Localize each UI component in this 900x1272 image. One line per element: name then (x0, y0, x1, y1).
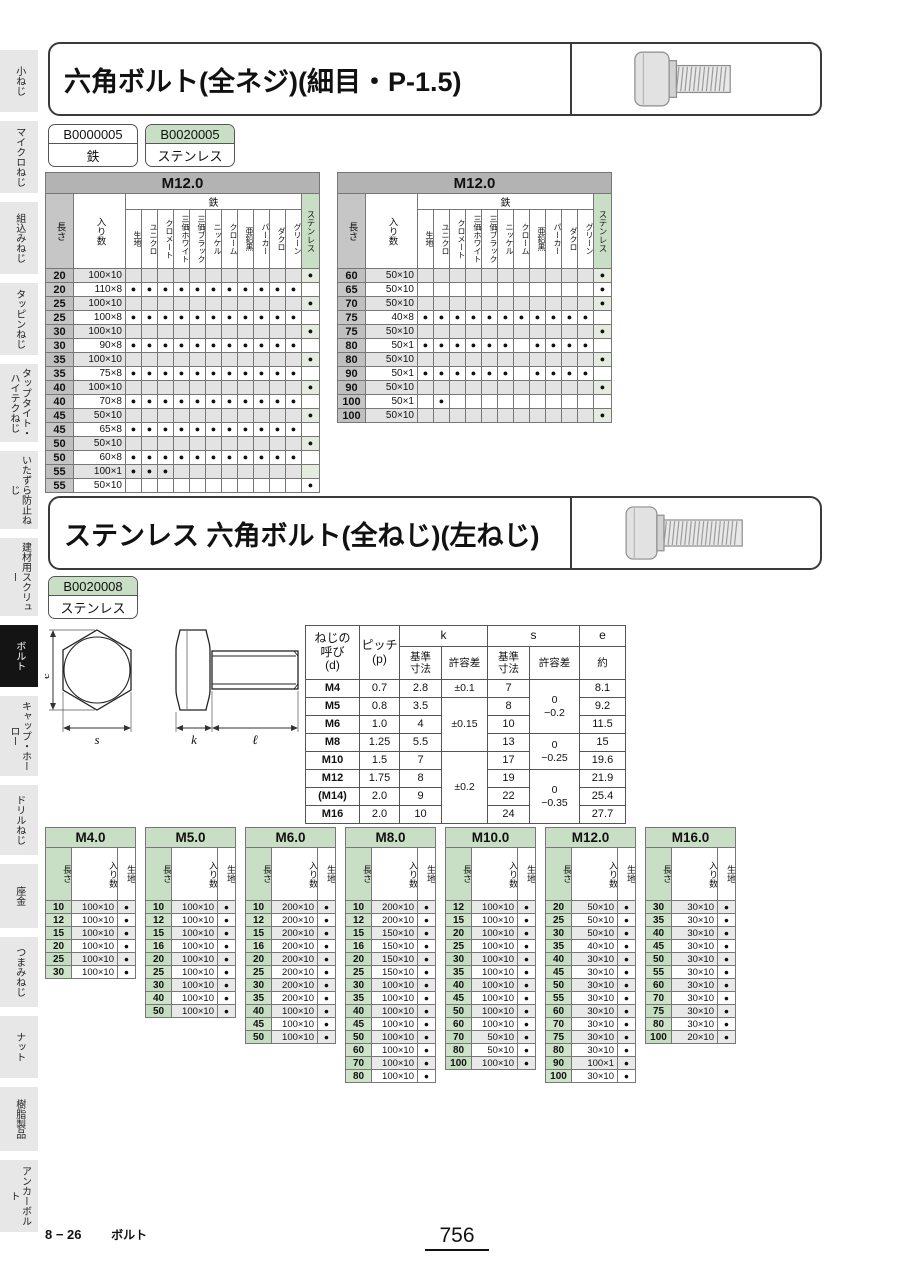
availability-cell: ● (618, 1070, 636, 1083)
k-tolerance-cell: ±0.2 (442, 752, 488, 824)
length-cell: 20 (146, 953, 172, 966)
finish-availability-cell (418, 269, 434, 283)
section2-header: ステンレス 六角ボルト(全ねじ)(左ねじ) (48, 496, 822, 570)
finish-availability-cell: ● (466, 311, 482, 325)
finish-availability-cell (530, 409, 546, 423)
sidebar-item-0: 小ねじ (0, 50, 38, 112)
qty-cell: 100×10 (472, 979, 518, 992)
finish-availability-cell: ● (206, 283, 222, 297)
qty-cell: 30×10 (672, 901, 718, 914)
finish-availability-cell: ● (546, 339, 562, 353)
availability-cell: ● (418, 1018, 436, 1031)
availability-cell: ● (218, 992, 236, 1005)
table-row: 12100×10● (146, 914, 236, 927)
table-row: 9050×1●●●●●●●●●● (338, 367, 612, 381)
table-row: 25200×10● (246, 966, 336, 979)
finish-col-header: 亜鉛黒 (530, 210, 546, 269)
finish-availability-cell (222, 437, 238, 451)
length-cell: 100 (546, 1070, 572, 1083)
pitch-cell: 0.7 (360, 680, 400, 698)
stainless-availability-cell: ● (594, 325, 612, 339)
table-row: 30100×10● (46, 966, 136, 979)
table-row: 30100×10● (46, 325, 320, 339)
availability-cell: ● (618, 979, 636, 992)
finish-availability-cell (286, 297, 302, 311)
finish-availability-cell: ● (286, 451, 302, 465)
table-row: 60100×10● (346, 1044, 436, 1057)
size-table-M12.0: M12.0長さ入り数生地2050×10●2550×10●3050×10●3540… (545, 827, 636, 1083)
finish-availability-cell: ● (498, 367, 514, 381)
finish-availability-cell (514, 269, 530, 283)
length-cell: 35 (546, 940, 572, 953)
finish-availability-cell (190, 465, 206, 479)
availability-cell: ● (118, 940, 136, 953)
qty-cell: 100×10 (172, 901, 218, 914)
sidebar-item-8: キャップ・ホーロー (0, 696, 38, 776)
dim-header-base: 基準 寸法 (400, 647, 442, 680)
length-cell: 10 (46, 901, 72, 914)
size-table-title: M6.0 (246, 828, 336, 848)
stainless-availability-cell: ● (594, 297, 612, 311)
finish-col-header: ユニクロ (142, 210, 158, 269)
table-row: 15150×10● (346, 927, 436, 940)
k-tolerance-cell: ±0.1 (442, 680, 488, 698)
qty-cell: 50×1 (366, 367, 418, 381)
table-row: 20100×10● (446, 927, 536, 940)
finish-col-header: クローム (514, 210, 530, 269)
finish-availability-cell: ● (286, 423, 302, 437)
table-row: 12100×10● (46, 914, 136, 927)
qty-cell: 50×10 (366, 283, 418, 297)
finish-availability-cell (270, 269, 286, 283)
availability-cell: ● (518, 914, 536, 927)
qty-cell: 30×10 (572, 1070, 618, 1083)
table-row: 40100×10● (446, 979, 536, 992)
qty-cell: 100×10 (472, 901, 518, 914)
dim-label-e: e (45, 673, 52, 679)
availability-cell: ● (618, 901, 636, 914)
finish-availability-cell (482, 297, 498, 311)
qty-cell: 100×10 (72, 927, 118, 940)
section2-bolt-photo (572, 498, 820, 568)
availability-cell: ● (218, 1005, 236, 1018)
finish-availability-cell (254, 479, 270, 493)
finish-availability-cell (466, 381, 482, 395)
length-cell: 40 (346, 1005, 372, 1018)
finish-availability-cell (142, 381, 158, 395)
finish-availability-cell: ● (126, 283, 142, 297)
qty-cell: 30×10 (572, 966, 618, 979)
finish-availability-cell: ● (142, 283, 158, 297)
finish-availability-cell (514, 395, 530, 409)
qty-cell: 100×10 (172, 953, 218, 966)
qty-cell: 50×10 (572, 927, 618, 940)
length-cell: 45 (546, 966, 572, 979)
finish-availability-cell (482, 409, 498, 423)
table-row: 45100×10● (446, 992, 536, 1005)
finish-availability-cell (270, 325, 286, 339)
finish-availability-cell: ● (222, 451, 238, 465)
table-row: 3530×10● (646, 914, 736, 927)
length-cell: 50 (346, 1031, 372, 1044)
dim-header-tol: 許容差 (442, 647, 488, 680)
stainless-availability-cell: ● (302, 325, 320, 339)
finish-availability-cell: ● (562, 311, 578, 325)
table-row: 4530×10● (646, 940, 736, 953)
availability-cell: ● (318, 1005, 336, 1018)
sidebar-item-10: 座金 (0, 864, 38, 928)
qty-cell: 100×10 (72, 901, 118, 914)
qty-cell: 100×10 (472, 992, 518, 1005)
material-label: 鉄 (49, 144, 137, 166)
finish-availability-cell: ● (450, 339, 466, 353)
finish-availability-cell (450, 283, 466, 297)
availability-cell: ● (218, 966, 236, 979)
finish-availability-cell: ● (286, 339, 302, 353)
product-code: B0000005 (49, 125, 137, 144)
finish-availability-cell: ● (190, 395, 206, 409)
finish-availability-cell: ● (418, 367, 434, 381)
length-cell: 50 (646, 953, 672, 966)
finish-availability-cell (546, 269, 562, 283)
length-cell: 12 (346, 914, 372, 927)
finish-availability-cell: ● (158, 423, 174, 437)
length-cell: 25 (46, 297, 74, 311)
finish-availability-cell: ● (482, 311, 498, 325)
finish-availability-cell (578, 325, 594, 339)
finish-availability-cell (206, 479, 222, 493)
table-row: 16150×10● (346, 940, 436, 953)
finish-availability-cell (254, 297, 270, 311)
finish-availability-cell (418, 325, 434, 339)
qty-cell: 50×10 (366, 297, 418, 311)
finish-availability-cell (190, 269, 206, 283)
finish-availability-cell (142, 325, 158, 339)
availability-cell: ● (418, 979, 436, 992)
length-cell: 80 (446, 1044, 472, 1057)
finish-availability-cell (434, 269, 450, 283)
finish-availability-cell: ● (254, 339, 270, 353)
qty-cell: 200×10 (272, 966, 318, 979)
availability-cell: ● (518, 901, 536, 914)
availability-cell: ● (418, 1044, 436, 1057)
qty-cell: 100×10 (472, 1018, 518, 1031)
length-cell: 30 (246, 979, 272, 992)
availability-cell: ● (118, 953, 136, 966)
finish-availability-cell: ● (222, 395, 238, 409)
availability-cell: ● (518, 1018, 536, 1031)
length-cell: 40 (246, 1005, 272, 1018)
finish-availability-cell: ● (530, 311, 546, 325)
length-cell: 80 (646, 1018, 672, 1031)
finish-availability-cell: ● (270, 395, 286, 409)
qty-cell: 40×10 (572, 940, 618, 953)
finish-availability-cell (466, 325, 482, 339)
stainless-availability-cell: ● (594, 269, 612, 283)
finish-availability-cell (530, 297, 546, 311)
finish-availability-cell (206, 269, 222, 283)
table-row: 2050×10● (546, 901, 636, 914)
table-row: 5050×10● (46, 437, 320, 451)
table-row: 8030×10● (546, 1044, 636, 1057)
table-row: 10020×10● (646, 1031, 736, 1044)
finish-availability-cell (546, 395, 562, 409)
plain-finish-col-header: 生地 (218, 848, 236, 901)
length-cell: 35 (46, 353, 74, 367)
finish-availability-cell (546, 353, 562, 367)
table-row: 25150×10● (346, 966, 436, 979)
finish-availability-cell: ● (434, 311, 450, 325)
availability-cell: ● (218, 927, 236, 940)
k-base-cell: 5.5 (400, 734, 442, 752)
finish-col-header: ダクロ (270, 210, 286, 269)
finish-availability-cell: ● (158, 395, 174, 409)
availability-cell: ● (318, 927, 336, 940)
length-cell: 35 (46, 367, 74, 381)
sidebar: 小ねじマイクロねじ組込みねじタッピンねじタップタイト・ハイテクねじいたずら防止ね… (0, 50, 38, 1232)
qty-cell: 150×10 (372, 953, 418, 966)
qty-cell: 30×10 (672, 1005, 718, 1018)
length-col-header: 長さ (646, 848, 672, 901)
qty-cell: 100×8 (74, 311, 126, 325)
finish-availability-cell (206, 437, 222, 451)
finish-availability-cell (418, 381, 434, 395)
finish-availability-cell: ● (158, 339, 174, 353)
finish-col-header: パーカー (546, 210, 562, 269)
finish-availability-cell (238, 437, 254, 451)
thread-size-cell: M10 (306, 752, 360, 770)
finish-availability-cell: ● (206, 423, 222, 437)
finish-availability-cell (286, 353, 302, 367)
length-cell: 30 (346, 979, 372, 992)
finish-availability-cell (222, 353, 238, 367)
qty-cell: 150×10 (372, 940, 418, 953)
qty-cell: 100×10 (472, 927, 518, 940)
finish-availability-cell: ● (206, 451, 222, 465)
length-cell: 30 (46, 966, 72, 979)
table-row: 6050×10● (338, 269, 612, 283)
finish-availability-cell (578, 353, 594, 367)
length-cell: 10 (246, 901, 272, 914)
availability-cell: ● (618, 966, 636, 979)
s-base-cell: 10 (488, 716, 530, 734)
table-row: 10030×10● (546, 1070, 636, 1083)
table-row: 15100×10● (446, 914, 536, 927)
availability-cell: ● (418, 1057, 436, 1070)
availability-cell: ● (518, 927, 536, 940)
finish-availability-cell (450, 297, 466, 311)
table-row: 45100×10● (346, 1018, 436, 1031)
s-tolerance-cell: 0 −0.25 (530, 734, 580, 770)
finish-availability-cell (450, 381, 466, 395)
finish-availability-cell (174, 381, 190, 395)
table-row: 3050×10● (546, 927, 636, 940)
finish-availability-cell (466, 297, 482, 311)
length-cell: 25 (246, 966, 272, 979)
finish-availability-cell (206, 297, 222, 311)
qty-cell: 100×1 (74, 465, 126, 479)
finish-availability-cell: ● (206, 367, 222, 381)
table-row: 40100×10● (46, 381, 320, 395)
stainless-availability-cell (302, 367, 320, 381)
table-row: 4070×8●●●●●●●●●●● (46, 395, 320, 409)
length-cell: 50 (146, 1005, 172, 1018)
section1-codes: B0000005 鉄 B0020005 ステンレス (48, 124, 235, 167)
finish-availability-cell (514, 297, 530, 311)
finish-availability-cell (158, 297, 174, 311)
availability-cell: ● (718, 1005, 736, 1018)
table-row: 10200×10● (346, 901, 436, 914)
length-cell: 25 (146, 966, 172, 979)
s-tolerance-cell: 0 −0.2 (530, 680, 580, 734)
table-row: 7530×10● (646, 1005, 736, 1018)
length-cell: 60 (338, 269, 366, 283)
finish-availability-cell (222, 381, 238, 395)
qty-cell: 30×10 (672, 927, 718, 940)
finish-availability-cell: ● (206, 311, 222, 325)
availability-cell: ● (618, 1005, 636, 1018)
finish-availability-cell (142, 437, 158, 451)
availability-cell: ● (418, 1070, 436, 1083)
finish-availability-cell (418, 283, 434, 297)
length-cell: 45 (46, 423, 74, 437)
finish-availability-cell (514, 325, 530, 339)
qty-col-header: 入り数 (472, 848, 518, 901)
availability-cell: ● (418, 940, 436, 953)
finish-availability-cell (238, 325, 254, 339)
qty-cell: 100×10 (272, 1005, 318, 1018)
length-cell: 75 (338, 311, 366, 325)
finish-availability-cell (238, 479, 254, 493)
finish-availability-cell (142, 353, 158, 367)
finish-availability-cell (498, 269, 514, 283)
sidebar-item-3: タッピンねじ (0, 283, 38, 355)
finish-availability-cell (254, 353, 270, 367)
stainless-availability-cell (302, 423, 320, 437)
availability-cell: ● (718, 966, 736, 979)
table-row: 70100×10● (346, 1057, 436, 1070)
qty-cell: 110×8 (74, 283, 126, 297)
finish-availability-cell (174, 353, 190, 367)
table-row: 25100×8●●●●●●●●●●● (46, 311, 320, 325)
qty-cell: 100×10 (372, 1031, 418, 1044)
qty-col-header: 入り数 (372, 848, 418, 901)
finish-availability-cell (578, 395, 594, 409)
length-cell: 20 (546, 901, 572, 914)
finish-availability-cell: ● (190, 311, 206, 325)
availability-cell: ● (618, 1057, 636, 1070)
table-row: 12100×10● (446, 901, 536, 914)
finish-availability-cell (286, 437, 302, 451)
sidebar-item-14: アンカーボルト (0, 1160, 38, 1232)
length-cell: 100 (646, 1031, 672, 1044)
finish-availability-cell (578, 381, 594, 395)
table-row: 50100×10● (446, 1005, 536, 1018)
catalog-page: 小ねじマイクロねじ組込みねじタッピンねじタップタイト・ハイテクねじいたずら防止ね… (0, 0, 900, 1272)
qty-cell: 50×10 (366, 409, 418, 423)
pitch-cell: 1.5 (360, 752, 400, 770)
finish-availability-cell: ● (418, 311, 434, 325)
qty-cell: 100×10 (172, 914, 218, 927)
availability-cell: ● (218, 953, 236, 966)
finish-availability-cell: ● (238, 339, 254, 353)
qty-cell: 100×10 (272, 1018, 318, 1031)
iron-group-header: 鉄 (418, 194, 594, 210)
length-cell: 30 (446, 953, 472, 966)
finish-availability-cell: ● (578, 311, 594, 325)
page-number: 756 (425, 1224, 489, 1251)
finish-availability-cell (546, 381, 562, 395)
finish-availability-cell: ● (126, 395, 142, 409)
length-cell: 80 (346, 1070, 372, 1083)
length-cell: 12 (146, 914, 172, 927)
length-cell: 15 (46, 927, 72, 940)
finish-availability-cell: ● (254, 311, 270, 325)
finish-availability-cell (514, 409, 530, 423)
qty-cell: 50×10 (366, 381, 418, 395)
qty-cell: 100×10 (372, 979, 418, 992)
finish-availability-cell (174, 437, 190, 451)
table-size-title: M12.0 (46, 173, 320, 194)
finish-availability-cell (254, 409, 270, 423)
table-row: 25100×10● (46, 297, 320, 311)
availability-cell: ● (518, 1005, 536, 1018)
qty-cell: 100×10 (74, 269, 126, 283)
finish-availability-cell (498, 297, 514, 311)
finish-availability-cell (514, 283, 530, 297)
length-cell: 100 (338, 409, 366, 423)
dim-header-p: ピッチ (p) (360, 626, 400, 680)
length-cell: 35 (346, 992, 372, 1005)
stainless-availability-cell (594, 339, 612, 353)
qty-cell: 60×8 (74, 451, 126, 465)
finish-availability-cell (466, 395, 482, 409)
finish-availability-cell: ● (158, 283, 174, 297)
qty-cell: 30×10 (572, 1031, 618, 1044)
availability-cell: ● (318, 1018, 336, 1031)
e-approx-cell: 15 (580, 734, 626, 752)
e-approx-cell: 21.9 (580, 770, 626, 788)
finish-availability-cell (450, 395, 466, 409)
availability-cell: ● (718, 1031, 736, 1044)
availability-cell: ● (318, 979, 336, 992)
stainless-availability-cell: ● (594, 353, 612, 367)
thread-size-cell: M5 (306, 698, 360, 716)
thread-size-cell: M12 (306, 770, 360, 788)
finish-availability-cell: ● (546, 311, 562, 325)
sidebar-item-12: ナット (0, 1016, 38, 1078)
length-cell: 80 (338, 353, 366, 367)
availability-cell: ● (718, 940, 736, 953)
availability-cell: ● (518, 966, 536, 979)
section2-codes: B0020008 ステンレス (48, 576, 138, 619)
qty-cell: 50×10 (366, 269, 418, 283)
availability-cell: ● (518, 1057, 536, 1070)
section1-header: 六角ボルト(全ネジ)(細目・P-1.5) (48, 42, 822, 116)
table-row: 4030×10● (646, 927, 736, 940)
stainless-availability-cell: ● (302, 297, 320, 311)
stainless-availability-cell (594, 311, 612, 325)
finish-availability-cell (514, 339, 530, 353)
finish-availability-cell: ● (450, 311, 466, 325)
finish-availability-cell (286, 325, 302, 339)
length-cell: 30 (46, 325, 74, 339)
finish-availability-cell (206, 465, 222, 479)
finish-col-header: クロメート (450, 210, 466, 269)
k-base-cell: 3.5 (400, 698, 442, 716)
finish-availability-cell (450, 353, 466, 367)
s-base-cell: 22 (488, 788, 530, 806)
